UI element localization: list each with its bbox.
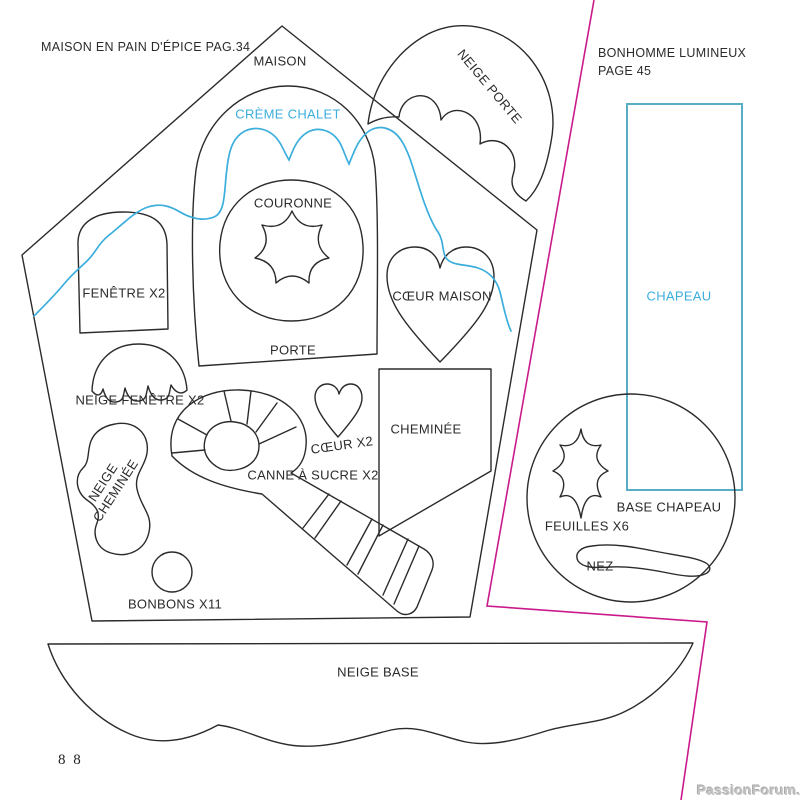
base-chapeau-circle: [527, 394, 735, 602]
couronne-star-shape: [255, 211, 329, 283]
label-canne-a-sucre: CANNE À SUCRE X2: [247, 469, 378, 484]
neige-base-shape: [48, 643, 693, 746]
label-chapeau: CHAPEAU: [647, 290, 712, 305]
feuilles-shape: [553, 429, 608, 518]
fenetre-shape: [78, 212, 168, 333]
candy-cane-hole: [204, 422, 259, 471]
label-neige-base: NEIGE BASE: [337, 666, 419, 681]
page-number: 8 8: [58, 752, 83, 769]
label-bonbons: BONBONS X11: [128, 598, 222, 613]
label-cheminee: CHEMINÉE: [390, 423, 461, 438]
right-section-title-line2: PAGE 45: [598, 62, 746, 80]
pattern-page: MAISON EN PAIN D'ÉPICE PAG.34 BONHOMME L…: [0, 0, 800, 800]
label-nez: NEZ: [587, 560, 614, 575]
label-porte: PORTE: [270, 344, 316, 359]
label-base-chapeau: BASE CHAPEAU: [617, 501, 722, 516]
coeur-x2-shape: [315, 384, 362, 437]
cheminee-shape: [379, 369, 491, 536]
bonbons-circle: [152, 552, 192, 592]
label-feuilles: FEUILLES X6: [545, 520, 629, 535]
label-couronne: COURONNE: [254, 197, 332, 212]
right-section-title: BONHOMME LUMINEUX PAGE 45: [598, 44, 746, 80]
watermark: PassionForum.ru: [697, 782, 800, 798]
right-section-title-line1: BONHOMME LUMINEUX: [598, 44, 746, 62]
label-creme-chalet: CRÈME CHALET: [235, 108, 340, 123]
label-fenetre: FENÊTRE X2: [82, 287, 165, 302]
candy-cane-stripes: [172, 391, 419, 604]
coeur-maison-shape: [387, 247, 494, 362]
left-section-title: MAISON EN PAIN D'ÉPICE PAG.34: [41, 38, 250, 56]
label-coeur-maison: CŒUR MAISON: [392, 290, 491, 305]
label-neige-fenetre: NEIGE FENÊTRE X2: [75, 394, 204, 409]
porte-shape: [192, 86, 377, 366]
label-maison: MAISON: [253, 55, 306, 70]
